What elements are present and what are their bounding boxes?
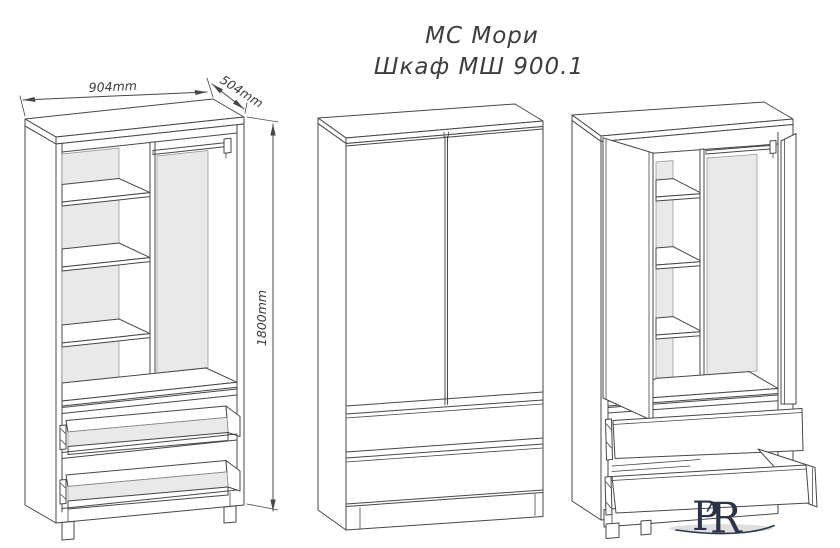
carcass [25,99,244,523]
left-side-panel [318,124,346,531]
dimension-height-label: 1800mm [254,290,269,346]
view-open-dimensioned: 904mm 504mm 1800mm [20,72,278,540]
leg [641,520,651,535]
leg [224,506,236,523]
drawing-title: МС Мори Шкаф МШ 900.1 [374,23,584,80]
carcass [318,104,543,530]
rod-bracket [770,141,776,154]
wardrobe-technical-drawing: МС Мори Шкаф МШ 900.1 [0,0,840,548]
leg [606,523,619,539]
left-side-panel [25,126,56,523]
dimension-height: 1800mm [247,117,278,511]
dimension-depth-label: 504mm [217,72,266,111]
vertical-divider [700,149,704,385]
title-series: МС Мори [425,23,539,49]
leg [62,521,74,540]
view-closed [318,104,543,530]
left-side-panel [572,121,601,521]
door-panel [603,138,653,421]
door-open-right [781,134,796,405]
mirror-panel [157,151,208,374]
mirror-panel [707,154,757,374]
rod-bracket [224,138,231,153]
logo-letter-r: R [710,494,743,543]
door-open-left [603,138,653,421]
arrowhead [270,124,275,136]
view-open-doors [572,102,817,539]
drawer-slide-bracket [606,419,613,460]
vertical-divider [150,142,155,391]
door-panel [781,134,796,405]
title-model: Шкаф МШ 900.1 [374,54,584,80]
dimension-width-label: 904mm [88,78,137,95]
